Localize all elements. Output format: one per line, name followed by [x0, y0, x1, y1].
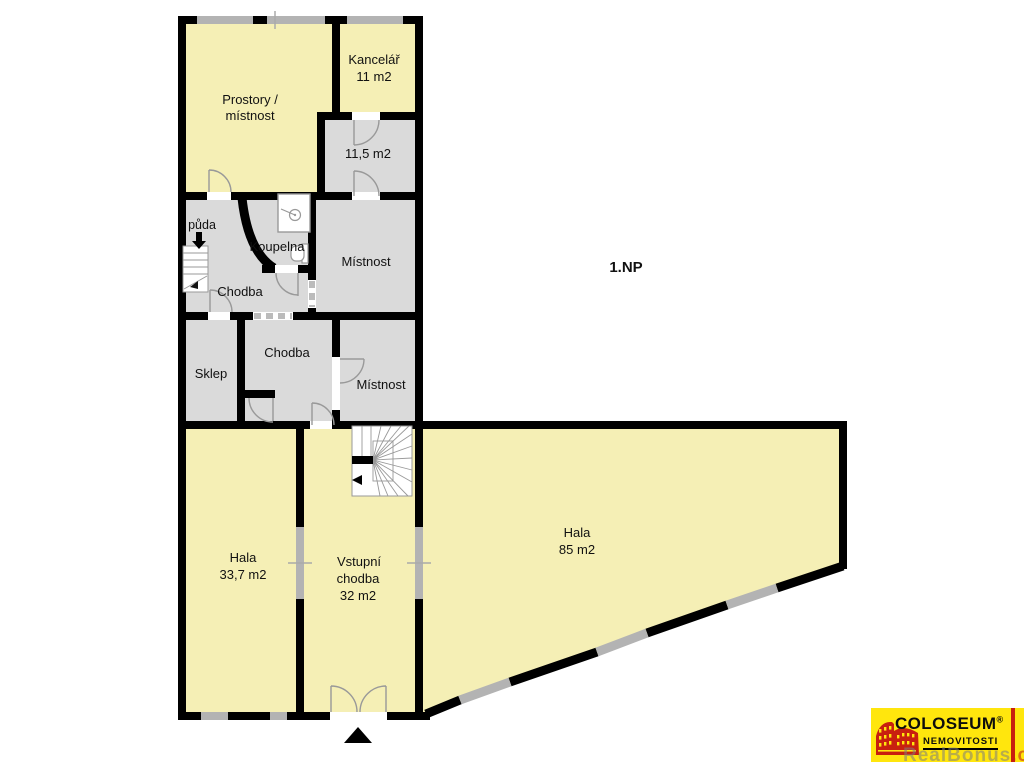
room-fills [182, 20, 843, 716]
room-area-vstupni: 32 m2 [340, 588, 376, 603]
room-label-vstupni-1: Vstupní [337, 554, 381, 569]
room-area-hala-left: 33,7 m2 [220, 567, 267, 582]
room-label-prostory-2: místnost [225, 108, 275, 123]
room-label-chodba-lower: Chodba [264, 345, 310, 360]
entrance-arrow-icon [344, 727, 372, 743]
logo-brand-text: COLOSEUM [895, 714, 996, 733]
room-label-kancelar: Kancelář [348, 52, 400, 67]
room-label-vstupni-2: chodba [337, 571, 380, 586]
room-label-prostory-1: Prostory / [222, 92, 278, 107]
room-area-kancelar: 11 m2 [356, 69, 391, 84]
floorplan-page: Prostory / místnost Kancelář 11 m2 11,5 … [0, 0, 1024, 768]
stairs-attic [183, 246, 208, 292]
room-kancelar [336, 20, 419, 116]
floor-plan: Prostory / místnost Kancelář 11 m2 11,5 … [0, 0, 1024, 768]
room-area-hala-main: 85 m2 [559, 542, 595, 557]
room-label-mistnost-small: Místnost [356, 377, 406, 392]
room-label-sklep: Sklep [195, 366, 228, 381]
shower-icon [278, 194, 310, 232]
room-label-hala-left: Hala [230, 550, 258, 565]
watermark-text: RealBonus [903, 745, 1011, 766]
room-area-115: 11,5 m2 [345, 146, 391, 161]
room-label-koupelna: Koupelna [250, 239, 306, 254]
room-label-mistnost-mid: Místnost [341, 254, 391, 269]
room-label-hala-main: Hala [564, 525, 592, 540]
room-label-chodba-upper: Chodba [217, 284, 263, 299]
room-hala-main [419, 425, 843, 715]
watermark: RealBonus.cz [903, 745, 1024, 767]
watermark-tld: .cz [1011, 745, 1024, 766]
floor-label: 1.NP [609, 259, 642, 276]
registered-mark: ® [996, 714, 1003, 724]
logo-brand: COLOSEUM® [895, 714, 1003, 734]
label-puda: půda [188, 218, 216, 232]
stairs-winder [352, 426, 412, 496]
